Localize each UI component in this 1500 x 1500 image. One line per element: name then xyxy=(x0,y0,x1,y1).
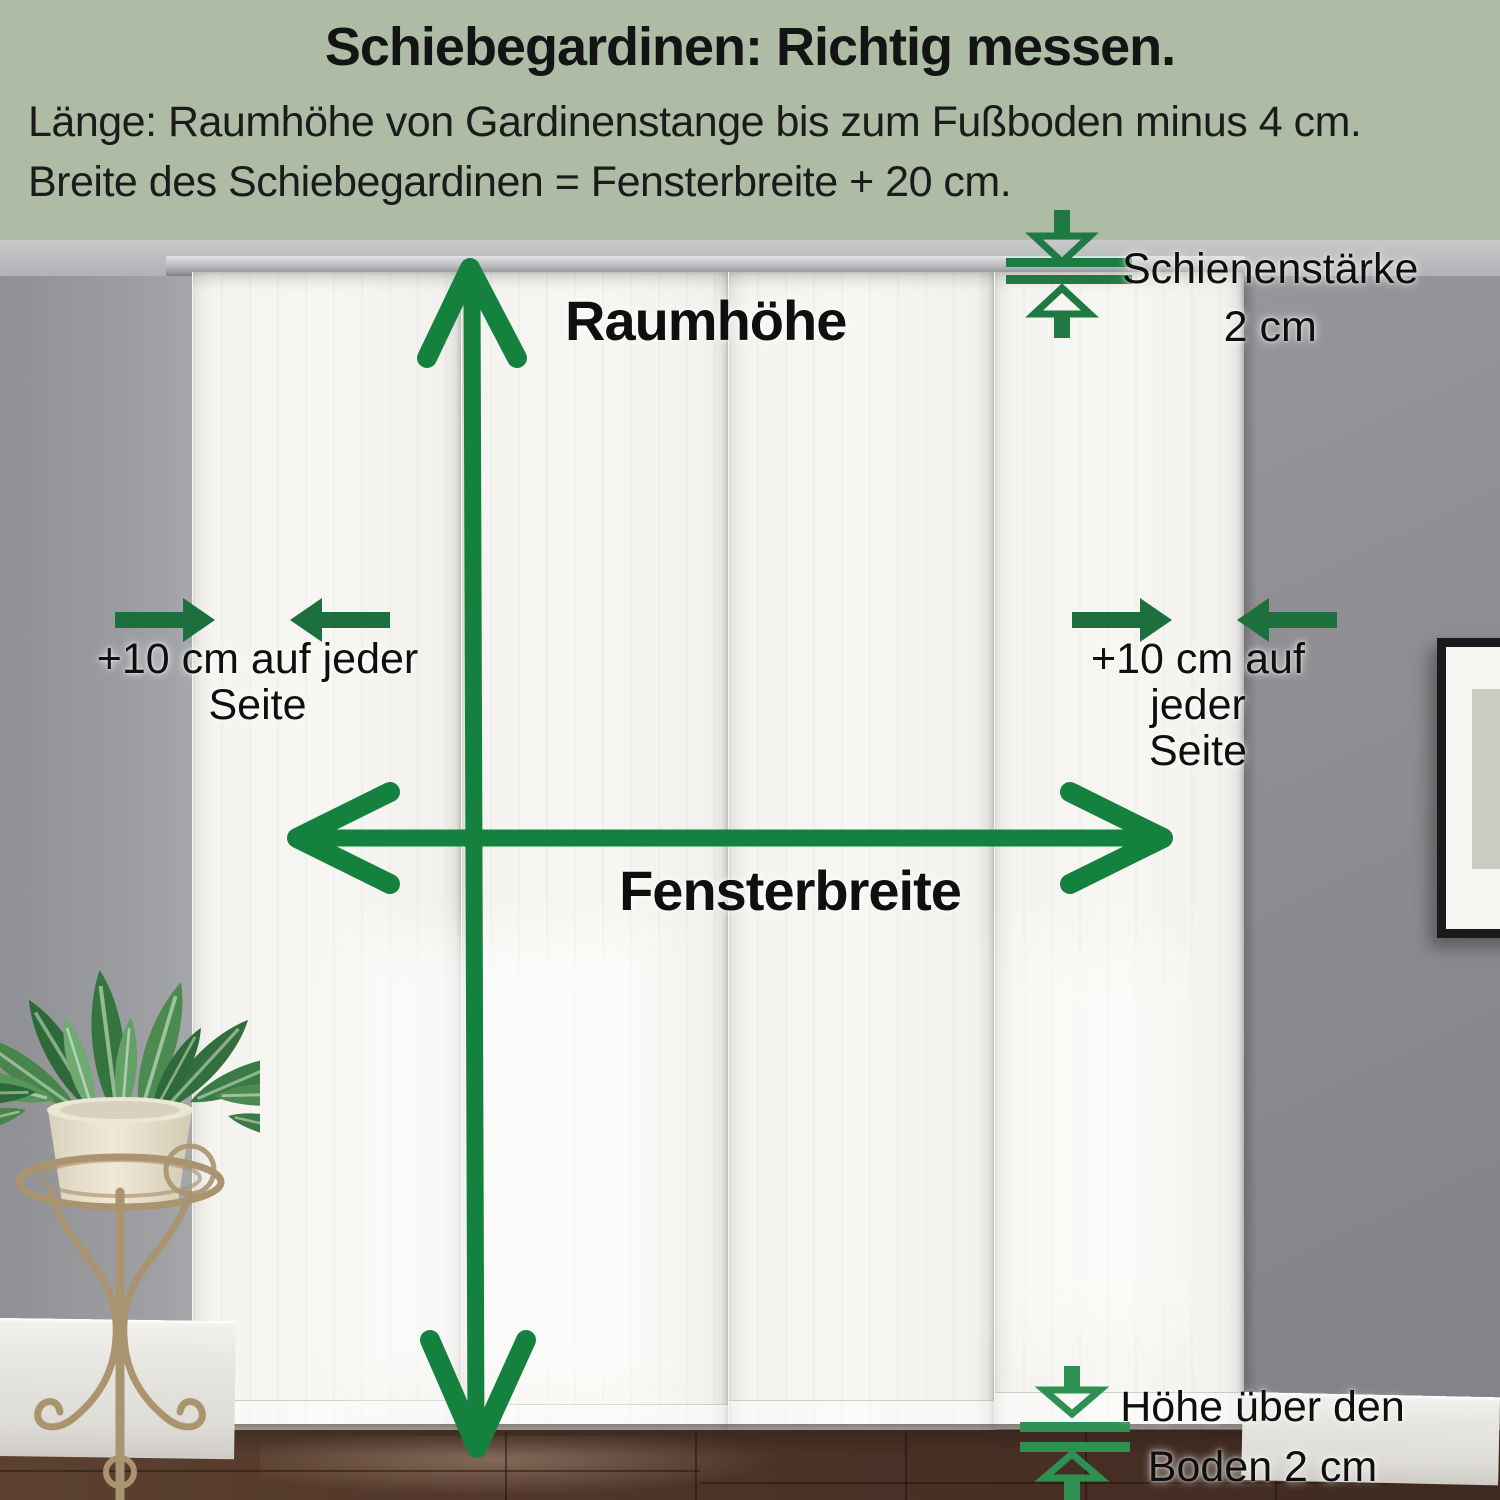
framed-artwork xyxy=(1472,689,1500,869)
curtain-panel-3 xyxy=(728,272,995,1437)
rail-thickness-label: Schienenstärke 2 cm xyxy=(1122,246,1418,350)
side-allowance-label-right: +10 cm auf jeder Seite xyxy=(1038,636,1358,774)
floor-clearance-label: Höhe über den Boden 2 cm xyxy=(1110,1384,1415,1490)
side-allowance-label-left: +10 cm auf jeder Seite xyxy=(95,636,420,728)
room-corner-shadow xyxy=(1243,276,1257,1500)
potted-plant xyxy=(0,920,260,1500)
measuring-infographic: Schiebegardinen: Richtig messen. Länge: … xyxy=(0,0,1500,1500)
light-glow xyxy=(342,932,672,1402)
length-instruction: Länge: Raumhöhe von Gardinenstange bis z… xyxy=(28,98,1361,147)
curtain-floor-shadow xyxy=(192,1424,1243,1454)
header-band: Schiebegardinen: Richtig messen. Länge: … xyxy=(0,0,1500,240)
plant-stand xyxy=(19,1146,221,1500)
light-glow xyxy=(1007,942,1187,1342)
window-width-label: Fensterbreite xyxy=(590,858,990,923)
room-height-label: Raumhöhe xyxy=(565,288,846,353)
picture-frame xyxy=(1437,638,1500,938)
width-instruction: Breite des Schiebegardinen = Fensterbrei… xyxy=(28,158,1011,207)
page-title: Schiebegardinen: Richtig messen. xyxy=(0,16,1500,78)
